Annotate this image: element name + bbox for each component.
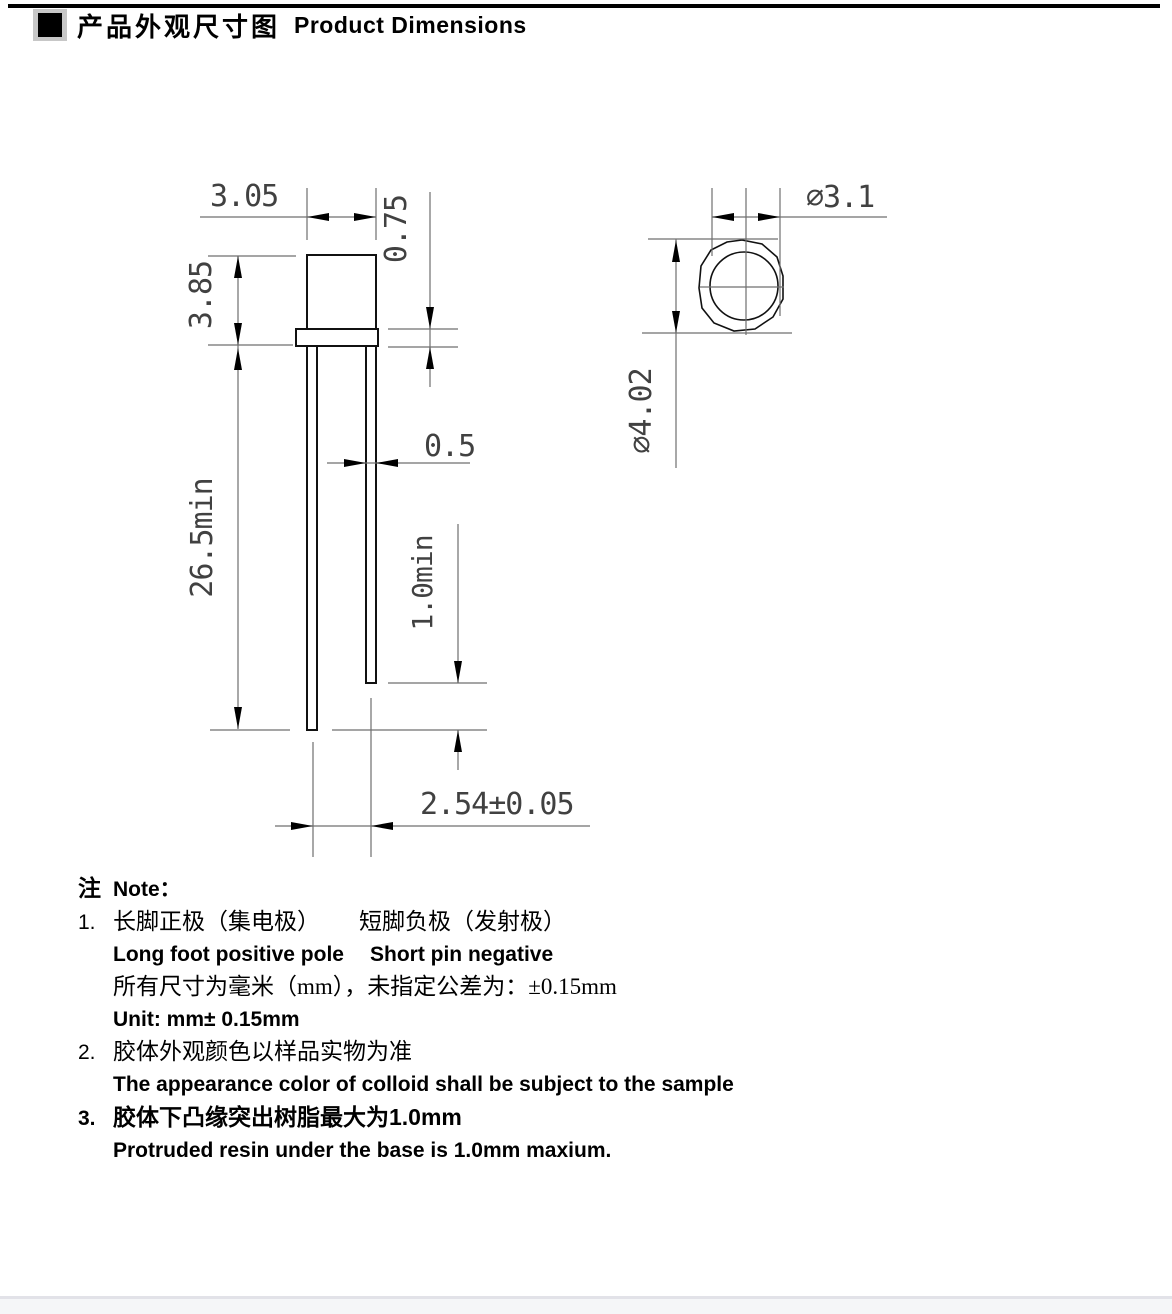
notes-section: 注 Note： 1. 长脚正极（集电极）短脚负极（发射极） Long foot …: [78, 872, 978, 1167]
dim-lens-diameter: ∅3.1: [712, 180, 887, 316]
dim-lead-width: 0.5: [327, 429, 475, 467]
note-2-number: 2.: [78, 1037, 113, 1069]
note-1-line-zh: 1. 长脚正极（集电极）短脚负极（发射极）: [78, 906, 978, 939]
dim-flange-thickness: 0.75: [379, 192, 458, 387]
note-1-zh-positive: 长脚正极（集电极）: [113, 909, 320, 934]
led-flange-outline: [296, 329, 378, 346]
dim-label-body-width: 3.05: [210, 179, 278, 214]
note-1-en-negative: Short pin negative: [370, 943, 553, 966]
dim-body-width: 3.05: [200, 179, 376, 240]
note-2-line-zh: 2. 胶体外观颜色以样品实物为准: [78, 1036, 978, 1069]
note-1-line-unit-en: Unit: mm± 0.15mm: [78, 1004, 978, 1036]
lens-circle: [710, 252, 778, 320]
dim-flange-diameter: ∅4.02: [624, 239, 792, 468]
note-1-unit-zh: 所有尺寸为毫米（mm），未指定公差为：±0.15mm: [113, 974, 617, 999]
note-2-en: The appearance color of colloid shall be…: [113, 1073, 734, 1096]
dim-lead-pitch: 2.54±0.05: [275, 698, 590, 857]
note-2-line-en: The appearance color of colloid shall be…: [78, 1069, 978, 1101]
note-2-zh: 胶体外观颜色以样品实物为准: [113, 1039, 412, 1064]
led-long-lead: [307, 346, 317, 730]
led-body-outline: [307, 255, 376, 329]
note-3-number: 3.: [78, 1103, 113, 1135]
led-front-view: [296, 255, 378, 730]
datasheet-page: 产品外观尺寸图 Product Dimensions 3.05: [0, 0, 1172, 1314]
note-1-line-unit-zh: 所有尺寸为毫米（mm），未指定公差为：±0.15mm: [78, 971, 978, 1004]
note-3-line-zh: 3. 胶体下凸缘突出树脂最大为1.0mm: [78, 1101, 978, 1135]
dim-label-lead-width: 0.5: [424, 429, 475, 464]
dim-label-flange-thickness: 0.75: [379, 195, 414, 263]
viewer-footer-bar: [0, 1296, 1172, 1314]
dim-label-lens-diameter: ∅3.1: [806, 180, 874, 215]
dim-lead-length: 26.5min: [185, 348, 487, 730]
dim-label-short-lead: 1.0min: [406, 535, 439, 630]
product-dimension-drawing: 3.05 0.75 3.85 26.5min: [0, 0, 1172, 880]
note-1-line-en: Long foot positive poleShort pin negativ…: [78, 939, 978, 971]
notes-heading-en: Note：: [113, 874, 181, 906]
note-3-zh: 胶体下凸缘突出树脂最大为1.0mm: [113, 1104, 462, 1130]
dim-label-lead-pitch: 2.54±0.05: [420, 787, 574, 822]
notes-heading-zh: 注: [78, 872, 101, 904]
note-3-line-en: Protruded resin under the base is 1.0mm …: [78, 1135, 978, 1167]
dim-label-lead-length: 26.5min: [185, 478, 220, 597]
note-1-en-positive: Long foot positive pole: [113, 943, 344, 966]
dim-label-body-height: 3.85: [184, 261, 219, 329]
note-1-zh-negative: 短脚负极（发射极）: [359, 909, 566, 934]
dim-label-flange-diameter: ∅4.02: [624, 368, 659, 453]
note-1-number: 1.: [78, 907, 113, 939]
dim-short-lead: 1.0min: [388, 524, 487, 770]
led-short-lead: [366, 346, 376, 683]
note-1-unit-en: Unit: mm± 0.15mm: [113, 1008, 300, 1031]
note-3-en: Protruded resin under the base is 1.0mm …: [113, 1139, 611, 1162]
notes-heading: 注 Note：: [78, 872, 978, 906]
